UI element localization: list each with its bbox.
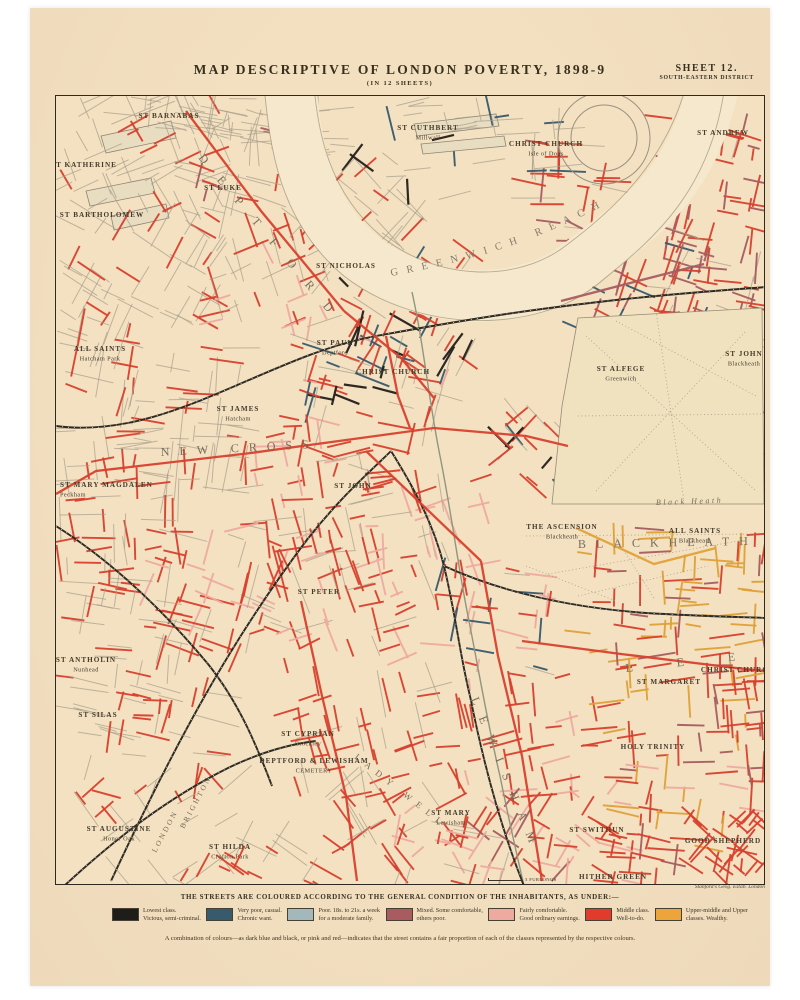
sheet-district: SOUTH-EASTERN DISTRICT	[660, 75, 754, 81]
map-artwork: GREENWICH REACHST BARNABASST KATHERINEST…	[56, 96, 765, 885]
parish-label: ST AUGUSTINE	[87, 825, 152, 833]
parish-label: ST NICHOLAS	[316, 262, 376, 270]
legend-label: Fairly comfortable. Good ordinary earnin…	[519, 907, 579, 923]
legend-line: Well-to-do.	[616, 915, 649, 923]
legend-heading: THE STREETS ARE COLOURED ACCORDING TO TH…	[30, 893, 770, 901]
parish-label: ST SWITHUN	[569, 826, 624, 834]
legend-line: Good ordinary earnings.	[519, 915, 579, 923]
parish-label: ST JAMES	[217, 405, 260, 413]
parish-label: ST JOHN	[334, 482, 371, 490]
sheet-info: SHEET 12. SOUTH-EASTERN DISTRICT	[660, 63, 754, 81]
parish-label: HOLY TRINITY	[621, 743, 686, 751]
scale-bar: 3 FURLONGS	[488, 877, 557, 882]
legend-line: Fairly comfortable.	[519, 907, 579, 915]
parish-label: ST BARNABAS	[139, 112, 200, 120]
map-sheet-paper: MAP DESCRIPTIVE OF LONDON POVERTY, 1898-…	[30, 8, 770, 986]
parish-label: DEPTFORD & LEWISHAM	[259, 757, 368, 765]
parish-sublabel: Crofton Park	[211, 854, 249, 861]
parish-sublabel: Greenwich	[605, 376, 637, 383]
parish-label: ST PAUL	[317, 339, 354, 347]
sheet-number: SHEET 12.	[660, 63, 754, 74]
parish-label: CHRIST CHURCH	[701, 666, 765, 674]
legend-item-poor: Poor. 18s. to 21s. a week for a moderate…	[287, 907, 380, 923]
parish-sublabel: Blackheath	[546, 534, 579, 541]
map-frame: GREENWICH REACHST BARNABASST KATHERINEST…	[55, 95, 765, 885]
legend-item-lowest-class: Lowest class. Vicious, semi-criminal.	[112, 907, 201, 923]
parish-sublabel: Brockley	[295, 741, 322, 748]
legend-item-fairly-comfortable: Fairly comfortable. Good ordinary earnin…	[488, 907, 579, 923]
legend-label: Mixed. Some comfortable, others poor.	[417, 907, 483, 923]
legend-line: for a moderate family.	[318, 915, 380, 923]
parish-label: HITHER GREEN	[579, 873, 647, 881]
parish-sublabel: Peckham	[60, 492, 86, 499]
parish-sublabel: Hatcham	[225, 416, 251, 423]
legend-item-mixed: Mixed. Some comfortable, others poor.	[386, 907, 483, 923]
product-photo-background: MAP DESCRIPTIVE OF LONDON POVERTY, 1898-…	[0, 0, 800, 1000]
parish-label: ST ANTHOLIN	[56, 656, 116, 664]
parish-label: ST SILAS	[78, 711, 117, 719]
legend-swatch-red	[585, 908, 612, 921]
parish-label: ST BARTHOLOMEW	[60, 211, 145, 219]
parish-label: ST CUTHBERT	[397, 124, 459, 132]
legend-swatch-pink	[488, 908, 515, 921]
legend-label: Lowest class. Vicious, semi-criminal.	[143, 907, 201, 923]
legend-line: Middle class.	[616, 907, 649, 915]
parish-label: ALL SAINTS	[74, 345, 126, 353]
parish-label: CHRIST CHURCH	[509, 140, 583, 148]
scale-label: 3 FURLONGS	[525, 877, 557, 882]
parish-label: ST MARGARET	[637, 678, 701, 686]
legend-swatch-black	[112, 908, 139, 921]
legend-line: Vicious, semi-criminal.	[143, 915, 201, 923]
legend-line: Poor. 18s. to 21s. a week	[318, 907, 380, 915]
legend-item-wealthy: Upper-middle and Upper classes. Wealthy.	[655, 907, 748, 923]
parish-label: CHRIST CHURCH	[356, 368, 430, 376]
legend-label: Poor. 18s. to 21s. a week for a moderate…	[318, 907, 380, 923]
legend-item-middle-class: Middle class. Well-to-do.	[585, 907, 649, 923]
parish-sublabel: Hatcham Park	[80, 356, 121, 363]
map-subtitle: (IN 12 SHEETS)	[30, 80, 770, 87]
parish-sublabel: Honor Oak	[103, 836, 135, 843]
parish-sublabel: CEMETERY	[296, 768, 333, 775]
parish-sublabel: Blackheath	[728, 361, 761, 368]
parish-sublabel: Isle of Dogs	[528, 151, 564, 158]
parish-label: ST MARY MAGDALEN	[60, 481, 153, 489]
legend-swatch-purple	[386, 908, 413, 921]
parish-sublabel: Nunhead	[73, 667, 99, 674]
parish-label: ST CYPRIAN	[281, 730, 335, 738]
legend-line: Lowest class.	[143, 907, 201, 915]
legend-line: Very poor, casual.	[237, 907, 281, 915]
parish-label: ST ANDREW	[697, 129, 749, 137]
legend-note: A combination of colours—as dark blue an…	[30, 935, 770, 942]
legend-item-very-poor: Very poor, casual. Chronic want.	[206, 907, 281, 923]
parish-label: THE ASCENSION	[526, 523, 598, 531]
parish-label: ST KATHERINE	[56, 161, 117, 169]
legend-swatch-dark-blue	[206, 908, 233, 921]
legend-line: Upper-middle and Upper	[686, 907, 748, 915]
legend-label: Very poor, casual. Chronic want.	[237, 907, 281, 923]
parish-label: ST ALFEGE	[597, 365, 646, 373]
legend-label: Upper-middle and Upper classes. Wealthy.	[686, 907, 748, 923]
legend-line: Mixed. Some comfortable,	[417, 907, 483, 915]
legend: Lowest class. Vicious, semi-criminal. Ve…	[112, 907, 748, 923]
legend-line: others poor.	[417, 915, 483, 923]
legend-swatch-light-blue	[287, 908, 314, 921]
legend-line: Chronic want.	[237, 915, 281, 923]
parish-label: ST HILDA	[209, 843, 251, 851]
publisher-credit: Stanford's Geog. Estab. London	[695, 884, 765, 890]
parish-sublabel: Deptford	[322, 350, 348, 357]
parish-label: GOOD SHEPHERD	[685, 837, 761, 845]
parish-sublabel: Millwall	[416, 135, 441, 142]
parish-label: ST JOHN	[725, 350, 762, 358]
scale-rule	[488, 878, 522, 881]
legend-swatch-gold	[655, 908, 682, 921]
parish-label: ST PETER	[298, 588, 340, 596]
legend-label: Middle class. Well-to-do.	[616, 907, 649, 923]
legend-line: classes. Wealthy.	[686, 915, 748, 923]
